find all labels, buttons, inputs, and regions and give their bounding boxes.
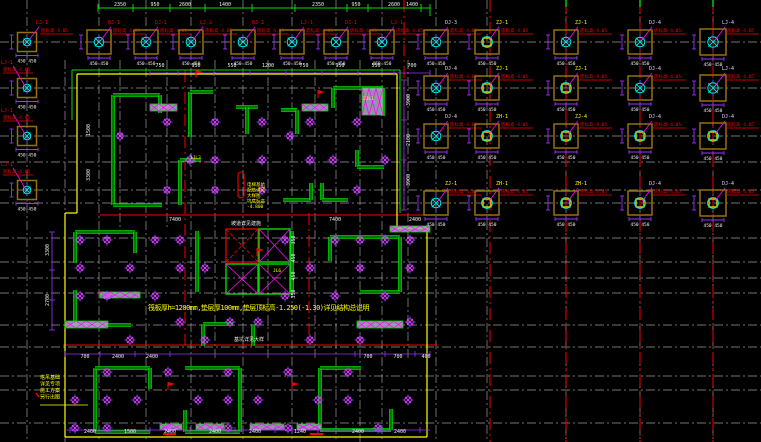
svg-text:750: 750	[299, 63, 308, 69]
svg-text:450 450: 450 450	[478, 222, 497, 228]
svg-text:底标高-4.05: 底标高-4.05	[727, 188, 754, 195]
svg-text:2400: 2400	[352, 429, 364, 435]
svg-text:450 450: 450 450	[631, 61, 650, 67]
svg-text:底标高-4.05: 底标高-4.05	[580, 121, 607, 128]
svg-text:550: 550	[227, 63, 236, 69]
svg-text:450 450: 450 450	[478, 155, 497, 161]
svg-text:DJ-2: DJ-2	[252, 20, 264, 26]
svg-text:7400: 7400	[329, 217, 341, 223]
svg-text:ZJ-1: ZJ-1	[496, 20, 508, 26]
svg-text:950: 950	[335, 63, 344, 69]
svg-text:3300: 3300	[86, 169, 92, 181]
svg-text:750: 750	[155, 63, 164, 69]
svg-text:450: 450	[291, 271, 297, 280]
svg-text:2600: 2600	[179, 2, 191, 8]
svg-text:450 450: 450 450	[18, 207, 37, 213]
svg-text:550: 550	[371, 63, 380, 69]
svg-text:450 450: 450 450	[137, 61, 156, 67]
svg-text:DJ-4: DJ-4	[649, 66, 661, 72]
svg-text:2400: 2400	[249, 429, 261, 435]
svg-text:底标高-4.05: 底标高-4.05	[3, 168, 30, 175]
svg-text:450 450: 450 450	[427, 222, 446, 228]
svg-text:底标高-4.05: 底标高-4.05	[580, 27, 607, 34]
svg-text:1240: 1240	[294, 429, 306, 435]
svg-text:700: 700	[407, 63, 416, 69]
svg-text:1JL3: 1JL3	[190, 155, 201, 161]
svg-text:ZJ-1: ZJ-1	[575, 20, 587, 26]
svg-text:底标高-4.05: 底标高-4.05	[41, 27, 68, 34]
svg-text:450 450: 450 450	[427, 107, 446, 113]
svg-text:2350: 2350	[312, 2, 324, 8]
svg-text:450 450: 450 450	[90, 61, 109, 67]
svg-text:450 450: 450 450	[704, 108, 723, 114]
svg-text:塔吊基础: 塔吊基础	[40, 374, 60, 381]
svg-text:2400: 2400	[209, 429, 221, 435]
svg-text:底标高-4.05: 底标高-4.05	[727, 73, 754, 80]
svg-text:2400: 2400	[164, 429, 176, 435]
svg-text:底标高-4.05: 底标高-4.05	[654, 121, 681, 128]
svg-text:底标高-4.05: 底标高-4.05	[450, 73, 477, 80]
svg-text:筏板厚h=1200mm,垫层厚100mm,垫层顶标高-1.2: 筏板厚h=1200mm,垫层厚100mm,垫层顶标高-1.250(-1.30)详…	[148, 303, 370, 312]
svg-text:LJ-1: LJ-1	[1, 60, 13, 66]
svg-text:1500: 1500	[124, 429, 136, 435]
svg-text:450 450: 450 450	[478, 107, 497, 113]
svg-text:DJ-4: DJ-4	[649, 181, 661, 187]
svg-text:ZH-1: ZH-1	[496, 114, 508, 120]
svg-text:底标高-4.05: 底标高-4.05	[580, 188, 607, 195]
svg-text:700: 700	[363, 354, 372, 360]
svg-text:LJ-2: LJ-2	[200, 20, 212, 26]
svg-text:大样图: 大样图	[247, 192, 261, 199]
svg-text:1200: 1200	[262, 63, 274, 69]
svg-text:2400: 2400	[112, 354, 124, 360]
svg-text:DJ-4: DJ-4	[722, 181, 734, 187]
svg-text:DJ-4: DJ-4	[649, 114, 661, 120]
svg-text:DJ-4: DJ-4	[445, 66, 457, 72]
svg-text:450 450: 450 450	[704, 223, 723, 229]
svg-text:底标高-4.05: 底标高-4.05	[580, 73, 607, 80]
svg-text:LJ-1: LJ-1	[301, 20, 313, 26]
svg-text:400: 400	[421, 354, 430, 360]
svg-text:LJ-1: LJ-1	[391, 20, 403, 26]
svg-text:底标高-4.05: 底标高-4.05	[501, 121, 528, 128]
svg-text:底标高-4.05: 底标高-4.05	[450, 121, 477, 128]
svg-text:450 450: 450 450	[18, 153, 37, 159]
svg-text:450 450: 450 450	[557, 107, 576, 113]
svg-text:450 450: 450 450	[557, 222, 576, 228]
svg-text:DJ-1: DJ-1	[155, 20, 167, 26]
svg-text:450 450: 450 450	[427, 61, 446, 67]
svg-text:DJ-1: DJ-1	[108, 20, 120, 26]
svg-text:700: 700	[80, 354, 89, 360]
svg-text:ZJ-1: ZJ-1	[496, 66, 508, 72]
svg-text:1400: 1400	[219, 2, 231, 8]
svg-text:配筋详见: 配筋详见	[247, 187, 265, 194]
svg-text:ZJ-1: ZJ-1	[445, 181, 457, 187]
svg-text:ZH-1: ZH-1	[575, 181, 587, 187]
svg-text:DJ-4: DJ-4	[722, 114, 734, 120]
svg-text:底标高-4.05: 底标高-4.05	[3, 66, 30, 73]
svg-text:详见专项: 详见专项	[40, 381, 60, 388]
svg-text:JL6: JL6	[273, 268, 281, 274]
svg-text:450 450: 450 450	[557, 61, 576, 67]
svg-text:底标高-4.05: 底标高-4.05	[727, 27, 754, 34]
svg-text:DJ-3: DJ-3	[445, 20, 457, 26]
svg-text:底标高-4.05: 底标高-4.05	[450, 188, 477, 195]
svg-text:450 450: 450 450	[704, 156, 723, 162]
svg-text:ZH-1: ZH-1	[496, 181, 508, 187]
svg-text:底标高-4.05: 底标高-4.05	[396, 27, 423, 34]
svg-text:450 450: 450 450	[18, 105, 37, 111]
svg-text:-4.800: -4.800	[247, 204, 264, 210]
svg-text:450 450: 450 450	[427, 155, 446, 161]
svg-text:1400: 1400	[406, 2, 418, 8]
svg-text:LJ-4: LJ-4	[722, 66, 734, 72]
svg-text:1500: 1500	[86, 124, 92, 136]
svg-text:450 450: 450 450	[478, 61, 497, 67]
svg-text:基坑详见大样: 基坑详见大样	[234, 336, 264, 343]
svg-text:底标高-4.05: 底标高-4.05	[501, 188, 528, 195]
svg-text:950: 950	[150, 2, 159, 8]
svg-text:450 450: 450 450	[557, 155, 576, 161]
svg-text:2400: 2400	[394, 429, 406, 435]
svg-text:350: 350	[291, 289, 297, 298]
svg-text:LJ-1: LJ-1	[36, 20, 48, 26]
svg-text:坡道详见建施: 坡道详见建施	[231, 220, 261, 227]
svg-text:电梯基坑: 电梯基坑	[247, 181, 265, 188]
svg-text:7400: 7400	[169, 217, 181, 223]
svg-text:450 450: 450 450	[631, 222, 650, 228]
svg-text:2400: 2400	[146, 354, 158, 360]
svg-text:450: 450	[291, 253, 297, 262]
svg-text:DJ-4: DJ-4	[649, 20, 661, 26]
svg-text:2600: 2600	[388, 2, 400, 8]
svg-text:LJ-1: LJ-1	[1, 108, 13, 114]
svg-text:底标高-4.05: 底标高-4.05	[3, 114, 30, 121]
svg-text:2100: 2100	[406, 134, 412, 146]
svg-text:底标高-4.05: 底标高-4.05	[501, 27, 528, 34]
svg-text:2700: 2700	[45, 294, 51, 306]
svg-text:另行出图: 另行出图	[40, 394, 60, 401]
svg-text:450 450: 450 450	[704, 62, 723, 68]
svg-text:底标高-4.05: 底标高-4.05	[654, 27, 681, 34]
svg-text:底标高-4.05: 底标高-4.05	[450, 27, 477, 34]
svg-text:2350: 2350	[114, 2, 126, 8]
svg-text:ZJ-4: ZJ-4	[575, 114, 587, 120]
svg-text:3300: 3300	[45, 244, 51, 256]
svg-text:450 450: 450 450	[631, 107, 650, 113]
svg-text:底标高-4.05: 底标高-4.05	[654, 73, 681, 80]
svg-text:施工方案: 施工方案	[40, 387, 60, 394]
svg-text:450 450: 450 450	[631, 155, 650, 161]
svg-text:950: 950	[351, 2, 360, 8]
svg-text:2JL1: 2JL1	[363, 96, 374, 102]
svg-text:底标高-4.05: 底标高-4.05	[205, 27, 232, 34]
svg-text:底标高-4.05: 底标高-4.05	[654, 188, 681, 195]
svg-text:DJ-1: DJ-1	[345, 20, 357, 26]
svg-text:950: 950	[191, 63, 200, 69]
svg-text:700: 700	[393, 354, 402, 360]
svg-text:2400: 2400	[409, 217, 421, 223]
svg-text:3900: 3900	[406, 94, 412, 106]
svg-text:DJ-4: DJ-4	[445, 114, 457, 120]
svg-text:450 450: 450 450	[18, 59, 37, 65]
svg-text:底标高-4.05: 底标高-4.05	[501, 73, 528, 80]
svg-text:350: 350	[291, 235, 297, 244]
svg-text:ZJ-1: ZJ-1	[575, 66, 587, 72]
cad-viewport[interactable]: 235095026001400235095026001400450 450LJ-…	[0, 0, 761, 442]
svg-text:2400: 2400	[84, 429, 96, 435]
svg-text:LJ-4: LJ-4	[722, 20, 734, 26]
foundation-plan-drawing[interactable]: 235095026001400235095026001400450 450LJ-…	[0, 0, 761, 442]
svg-text:LJ-1: LJ-1	[1, 162, 13, 168]
svg-text:坑底标高: 坑底标高	[247, 198, 265, 205]
svg-text:3900: 3900	[406, 174, 412, 186]
svg-text:底标高-4.05: 底标高-4.05	[727, 121, 754, 128]
